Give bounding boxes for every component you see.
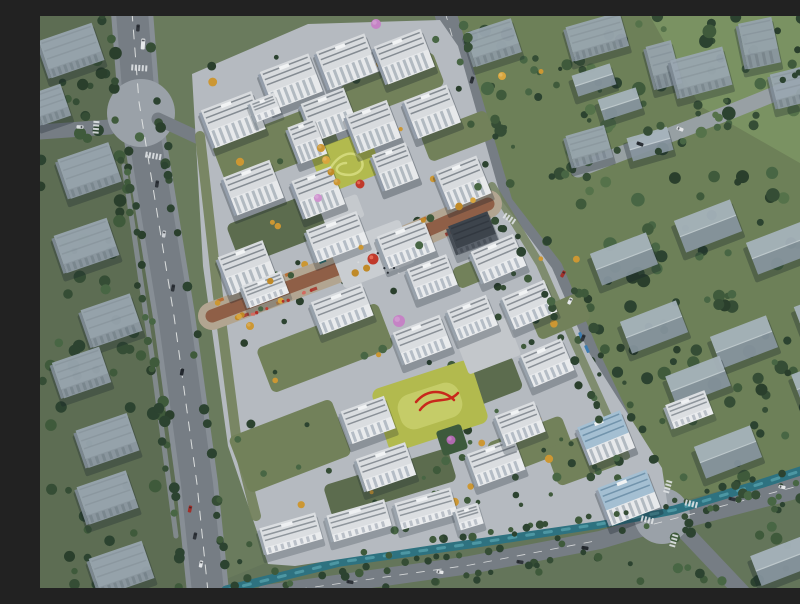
site-trees <box>597 372 601 376</box>
site-trees <box>433 466 441 474</box>
street-trees <box>463 33 473 43</box>
blossom-tree-highlight <box>372 20 377 25</box>
street-trees <box>639 426 647 434</box>
street-trees <box>199 404 209 414</box>
site-trees <box>456 86 462 92</box>
canal-grove <box>580 549 586 555</box>
red-sphere-sculpture-highlight <box>357 181 360 184</box>
canal-trees <box>243 574 251 582</box>
retail-street-trees <box>215 300 221 306</box>
southeast-grove <box>680 473 688 481</box>
street-trees <box>724 122 732 130</box>
canal-trees <box>682 513 689 520</box>
canal-trees <box>271 567 279 575</box>
retail-street-trees <box>288 272 294 278</box>
street-trees <box>516 247 526 257</box>
street-trees <box>144 337 152 345</box>
street-trees <box>705 522 712 529</box>
site-trees <box>305 422 310 427</box>
northeast-forest <box>788 60 797 69</box>
autumn-tree-highlight <box>247 323 251 327</box>
northeast-forest <box>696 192 704 200</box>
street-trees <box>595 416 603 424</box>
street-trees <box>541 291 548 298</box>
street-trees <box>164 142 172 150</box>
street-trees <box>550 313 557 320</box>
street-trees <box>174 229 181 236</box>
street-trees <box>146 42 156 52</box>
aerial-masterplan-rendering <box>40 16 800 588</box>
vehicle <box>141 38 146 49</box>
site-trees <box>501 285 507 291</box>
canal-grove <box>414 556 420 562</box>
west-grove <box>81 112 90 121</box>
west-grove <box>135 132 144 141</box>
street-trees <box>220 560 230 570</box>
west-grove <box>134 229 141 236</box>
site-trees <box>246 420 255 429</box>
site-trees <box>272 378 278 384</box>
vehicle-windshield <box>583 547 585 550</box>
site-trees <box>273 370 278 375</box>
street-trees <box>111 116 118 123</box>
street-trees <box>500 225 507 232</box>
street-trees <box>149 318 156 325</box>
site-trees <box>502 125 507 130</box>
street-trees <box>780 502 785 507</box>
retail-street-trees <box>236 314 242 320</box>
street-trees <box>124 169 131 176</box>
site-trees <box>524 275 532 283</box>
street-trees <box>752 112 759 119</box>
site-trees <box>390 288 397 295</box>
canal-trees <box>508 527 513 532</box>
east-forest <box>576 199 587 210</box>
canal-trees <box>619 527 626 534</box>
east-forest <box>762 407 768 413</box>
northeast-forest <box>749 120 759 130</box>
southeast-grove <box>755 531 764 540</box>
street-trees <box>587 391 595 399</box>
street-trees <box>525 562 533 570</box>
site-trees <box>298 501 305 508</box>
canal-trees <box>424 557 431 564</box>
northeast-forest <box>525 88 532 95</box>
east-forest <box>756 384 768 396</box>
site-trees <box>539 256 544 261</box>
site-trees <box>529 339 535 345</box>
site-trees <box>515 234 521 240</box>
east-forest <box>713 299 724 310</box>
northeast-forest <box>600 177 611 188</box>
site-trees <box>482 161 489 168</box>
street-trees <box>600 344 610 354</box>
east-forest <box>783 337 791 345</box>
site-trees <box>574 381 582 389</box>
northeast-forest <box>481 82 494 95</box>
canal-trees <box>429 536 436 543</box>
street-trees <box>153 97 161 105</box>
canal-trees <box>488 529 494 535</box>
east-forest <box>670 358 677 365</box>
street-trees <box>627 413 636 422</box>
canal-trees <box>644 523 650 529</box>
site-trees <box>513 492 520 499</box>
retail-street-trees <box>455 203 463 211</box>
street-trees <box>643 126 653 136</box>
autumn-tree-highlight <box>499 73 503 77</box>
northeast-forest <box>614 147 621 154</box>
west-grove <box>101 284 111 294</box>
street-trees <box>778 470 786 478</box>
west-grove <box>130 529 138 537</box>
retail-street-trees <box>415 241 423 249</box>
canal-trees <box>468 533 476 541</box>
west-grove <box>109 47 122 60</box>
street-trees <box>463 572 469 578</box>
street-trees <box>547 297 556 306</box>
canal-grove <box>473 576 480 583</box>
cafe-umbrellas <box>310 289 313 292</box>
canal-trees <box>624 510 629 515</box>
street-trees <box>175 548 185 558</box>
site-trees <box>587 473 596 482</box>
site-trees <box>260 470 267 477</box>
site-trees <box>378 345 387 354</box>
site-trees <box>494 409 498 413</box>
southeast-grove <box>771 533 783 545</box>
canal-trees <box>793 480 799 486</box>
site-trees <box>275 223 281 229</box>
site-trees <box>208 78 217 87</box>
cafe-umbrellas <box>287 299 290 302</box>
east-forest <box>612 367 623 378</box>
blossom-tree-highlight <box>315 195 319 199</box>
site-trees <box>295 260 300 265</box>
autumn-tree-highlight <box>323 157 327 161</box>
red-sphere-sculpture <box>368 254 379 265</box>
site-trees <box>541 448 546 453</box>
northeast-forest <box>549 173 556 180</box>
site-trees <box>587 118 592 123</box>
east-forest <box>624 300 637 313</box>
street-trees <box>203 419 212 428</box>
street-trees <box>491 217 499 225</box>
canal-trees <box>362 563 369 570</box>
street-trees <box>183 282 193 292</box>
site-trees <box>274 55 279 60</box>
retail-street-trees <box>258 306 263 311</box>
east-forest <box>733 383 742 392</box>
street-trees <box>154 403 165 414</box>
retail-street-trees <box>267 278 273 284</box>
street-trees <box>142 314 149 321</box>
east-forest <box>588 323 598 333</box>
canal-grove <box>246 541 252 547</box>
street-trees <box>126 209 134 217</box>
cafe-umbrellas <box>265 307 268 310</box>
street-trees <box>488 570 493 575</box>
west-grove <box>124 147 133 156</box>
canal-trees <box>287 580 293 586</box>
street-trees <box>749 476 755 482</box>
street-trees <box>594 403 600 409</box>
northeast-forest <box>585 104 596 115</box>
street-trees <box>217 536 224 543</box>
west-grove <box>134 282 141 289</box>
street-trees <box>723 98 728 103</box>
canal-trees <box>542 521 548 527</box>
street-trees <box>534 563 540 569</box>
street-trees <box>731 481 740 490</box>
canal-trees <box>586 514 592 520</box>
east-forest <box>704 296 711 303</box>
site-trees <box>511 145 515 149</box>
street-trees <box>431 578 439 586</box>
canal-grove <box>559 541 566 548</box>
cafe-umbrellas <box>282 300 285 303</box>
crosswalk-stripe <box>93 128 99 130</box>
west-grove <box>110 369 118 377</box>
site-trees <box>512 531 517 536</box>
southeast-grove <box>684 519 693 528</box>
site-trees <box>561 170 569 178</box>
west-grove <box>46 484 57 495</box>
site-trees <box>464 497 471 504</box>
west-grove <box>73 98 80 105</box>
vehicle-body <box>76 125 83 129</box>
east-forest <box>784 370 791 377</box>
northeast-forest <box>736 170 749 183</box>
street-trees <box>780 77 786 83</box>
canal-grove <box>386 552 393 559</box>
southeast-grove <box>684 564 691 571</box>
street-trees <box>167 204 175 212</box>
canal-grove <box>637 577 645 585</box>
cafe-umbrellas <box>255 311 258 314</box>
east-forest <box>725 249 732 256</box>
cafe-umbrellas <box>252 313 255 316</box>
northeast-forest <box>722 107 736 121</box>
west-grove <box>125 402 136 413</box>
autumn-tree-highlight <box>328 169 331 172</box>
northeast-forest <box>766 188 780 202</box>
canal-grove <box>594 553 602 561</box>
canal-grove <box>318 572 326 580</box>
site-trees <box>468 440 473 445</box>
site-trees <box>568 459 576 467</box>
canal-grove <box>628 561 633 566</box>
northeast-forest <box>669 172 681 184</box>
site-trees <box>296 464 301 469</box>
canal-grove <box>384 567 391 574</box>
southeast-grove <box>717 576 726 585</box>
west-grove <box>65 487 72 494</box>
west-grove <box>55 339 64 348</box>
street-trees <box>475 570 482 577</box>
street-trees <box>155 122 166 133</box>
site-trees <box>573 256 580 263</box>
southeast-grove <box>767 522 777 532</box>
west-grove <box>159 416 170 427</box>
street-trees <box>171 492 180 501</box>
autumn-tree-highlight <box>334 179 337 182</box>
canal-trees <box>575 516 583 524</box>
vehicle-windshield <box>137 26 139 28</box>
street-trees <box>169 482 180 493</box>
site-trees <box>558 67 562 71</box>
street-trees <box>490 115 499 124</box>
northeast-forest <box>766 167 778 179</box>
site-trees <box>277 158 283 164</box>
street-trees <box>219 543 228 552</box>
site-trees <box>622 381 626 385</box>
northeast-forest <box>696 127 707 138</box>
street-trees <box>139 295 147 303</box>
east-forest <box>757 219 764 226</box>
canal-grove <box>433 554 439 560</box>
site-trees <box>281 319 287 325</box>
street-trees <box>771 506 778 513</box>
canal-trees <box>401 558 409 566</box>
street-trees <box>474 183 482 191</box>
canal-trees <box>704 489 709 494</box>
red-sphere-sculpture-highlight <box>369 255 373 259</box>
east-forest <box>728 290 737 299</box>
vehicle <box>136 24 140 31</box>
street-trees <box>432 36 439 43</box>
site-trees <box>361 352 369 360</box>
crosswalk-stripe <box>138 65 140 71</box>
site-trees <box>521 344 526 349</box>
street-trees <box>627 401 634 408</box>
street-trees <box>111 77 119 85</box>
site-trees <box>539 69 544 74</box>
street-trees <box>583 173 591 181</box>
northeast-forest <box>534 93 542 101</box>
west-grove <box>64 551 75 562</box>
street-trees <box>149 366 155 372</box>
east-forest <box>724 396 735 407</box>
street-trees <box>655 148 662 155</box>
site-trees <box>207 62 216 71</box>
site-trees <box>422 476 426 480</box>
canal-trees <box>735 496 742 503</box>
east-forest <box>750 421 758 429</box>
west-grove <box>132 202 140 210</box>
street-trees <box>714 124 721 131</box>
site-trees <box>559 437 563 441</box>
street-trees <box>506 179 515 188</box>
site-trees <box>552 473 561 482</box>
west-grove <box>45 419 57 431</box>
street-trees <box>464 43 473 52</box>
street-trees <box>570 356 579 365</box>
west-grove <box>63 289 73 299</box>
canal-trees <box>460 534 467 541</box>
west-grove <box>138 261 146 269</box>
retail-street-trees <box>470 197 476 203</box>
site-trees <box>457 59 464 66</box>
northeast-forest <box>661 26 667 32</box>
street-trees <box>649 455 658 464</box>
site-trees <box>569 441 574 446</box>
canal-grove <box>237 559 242 564</box>
crosswalk-stripe <box>93 124 99 126</box>
crosswalk-stripe <box>142 65 144 71</box>
vehicle-body <box>136 24 140 31</box>
street-trees <box>190 351 197 358</box>
canal-trees <box>718 483 726 491</box>
canal-trees <box>439 536 444 541</box>
canal-trees <box>707 505 713 511</box>
northeast-forest <box>553 82 560 89</box>
red-sphere-sculpture <box>356 180 365 189</box>
street-trees <box>207 448 217 458</box>
autumn-tree-highlight <box>318 145 322 149</box>
east-forest <box>659 418 665 424</box>
east-forest <box>641 372 653 384</box>
site-trees <box>545 455 553 463</box>
northeast-forest <box>712 112 719 119</box>
northeast-forest <box>585 187 594 196</box>
street-trees <box>695 111 701 117</box>
east-forest <box>756 429 764 437</box>
street-trees <box>161 162 169 170</box>
northeast-forest <box>459 21 469 31</box>
street-trees <box>150 357 160 367</box>
northeast-forest <box>631 193 645 207</box>
street-trees <box>680 138 687 145</box>
west-grove <box>104 536 115 547</box>
canal-grove <box>547 557 554 564</box>
street-trees <box>571 287 578 294</box>
canal-trees <box>555 535 561 541</box>
west-grove <box>71 568 77 574</box>
vehicle-windshield <box>156 182 159 184</box>
east-forest <box>642 223 654 235</box>
street-trees <box>213 512 220 519</box>
street-trees <box>543 236 552 245</box>
plaza-people <box>375 251 377 253</box>
canal-grove <box>355 569 364 578</box>
west-grove <box>114 194 127 207</box>
cafe-umbrellas <box>302 291 305 294</box>
blossom-tree-highlight <box>395 317 400 322</box>
vehicle-windshield <box>142 40 145 42</box>
canal-trees <box>443 554 450 561</box>
east-forest <box>673 346 681 354</box>
west-grove <box>149 480 162 493</box>
site-trees <box>467 121 474 128</box>
site-trees <box>240 339 248 347</box>
crosswalk-stripe <box>93 121 99 123</box>
street-trees <box>125 184 134 193</box>
street-trees <box>492 133 498 139</box>
site-trees <box>519 503 523 507</box>
canal-trees <box>614 511 620 517</box>
site-trees <box>270 220 275 225</box>
street-trees <box>792 72 798 78</box>
canal-trees <box>672 498 677 503</box>
street-trees <box>663 504 669 510</box>
northeast-forest <box>708 171 720 183</box>
site-trees <box>234 436 241 443</box>
retail-street-trees <box>358 245 363 250</box>
street-trees <box>682 527 689 534</box>
site-trees <box>236 158 244 166</box>
crosswalk-stripe <box>93 131 99 133</box>
